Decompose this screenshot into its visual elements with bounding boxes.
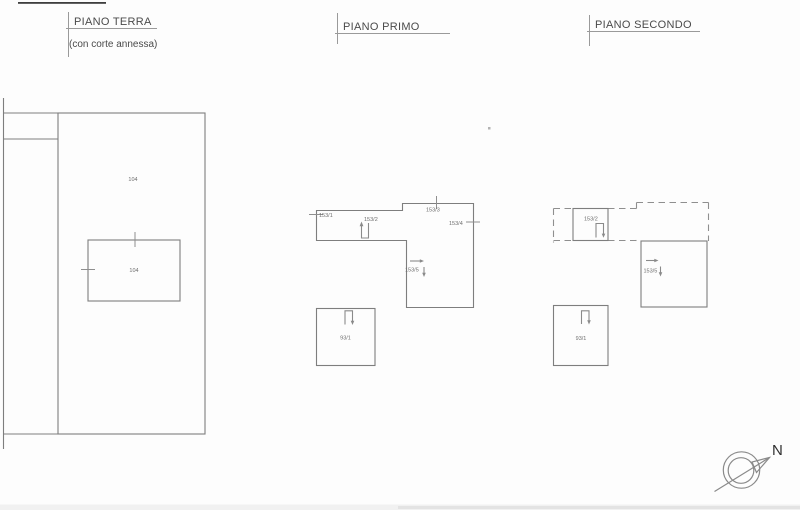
terra-subtitle: (con corte annessa): [69, 39, 157, 50]
compass-north-label: N: [772, 442, 783, 459]
scan-speck: [488, 127, 491, 130]
terra-outer-parcel-label: 104: [128, 177, 137, 183]
secondo-title: PIANO SECONDO: [595, 19, 692, 31]
primo-tick-left-label: 153/1: [319, 213, 333, 219]
plan-piano-secondo: PIANO SECONDO 153/2 153/5 93/1: [554, 15, 709, 366]
secondo-annex-stair-symbol: [582, 311, 590, 324]
primo-arrow-down-icon: [422, 273, 426, 277]
primo-annex-label: 93/1: [340, 336, 351, 342]
secondo-annex-stair-down-arrow-icon: [587, 320, 591, 324]
compass-inner-circle-icon: [728, 458, 754, 484]
secondo-room-label: 153/5: [644, 269, 658, 275]
secondo-arrow-right-icon: [654, 259, 658, 263]
plan-piano-terra: PIANO TERRA (con corte annessa) 104 104: [4, 12, 206, 449]
primo-stair-up-arrow-icon: [360, 222, 364, 227]
primo-apartment-outline: [317, 204, 474, 308]
secondo-stair-symbol: [596, 224, 604, 238]
primo-room-label: 153/5: [405, 268, 419, 274]
primo-title: PIANO PRIMO: [343, 21, 420, 33]
terra-inner-parcel-label: 104: [129, 268, 138, 274]
plan-piano-primo: PIANO PRIMO 153/1 153/2 153/3 153/4 153/…: [309, 13, 480, 366]
primo-annex-stair-down-arrow-icon: [351, 321, 355, 325]
scan-bottom-shadow-dark: [398, 506, 800, 509]
primo-arrow-right-icon: [420, 259, 424, 263]
terra-title: PIANO TERRA: [74, 16, 152, 28]
primo-stair-label: 153/2: [364, 217, 378, 223]
secondo-stair-label: 153/2: [584, 217, 598, 223]
secondo-stair-down-arrow-icon: [602, 234, 606, 238]
floorplan-drawing: PIANO TERRA (con corte annessa) 104 104 …: [0, 0, 800, 510]
primo-tick-top-label: 153/3: [426, 208, 440, 214]
compass-needle: [715, 458, 770, 492]
cadastral-floorplan-sheet: PIANO TERRA (con corte annessa) 104 104 …: [0, 0, 800, 510]
primo-annex-stair-symbol: [345, 311, 353, 325]
primo-tick-right-label: 153/4: [449, 221, 463, 227]
secondo-arrow-down-icon: [659, 272, 663, 276]
secondo-annex-label: 93/1: [576, 336, 587, 342]
compass-rose: N: [715, 442, 783, 492]
compass-arrowhead-icon: [752, 458, 770, 473]
scan-edge-mark: [18, 2, 106, 4]
